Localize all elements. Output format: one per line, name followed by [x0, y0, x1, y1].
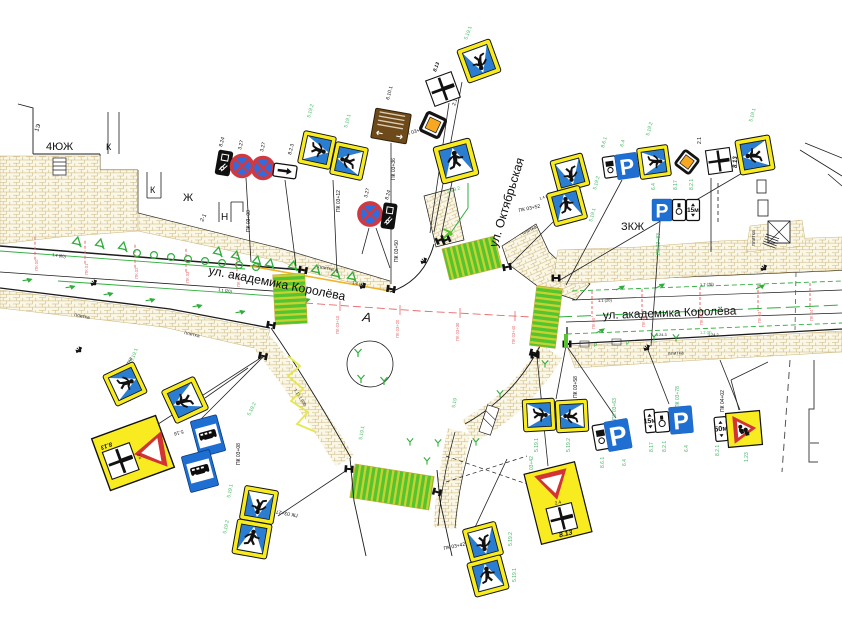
svg-text:15м: 15м	[687, 207, 699, 214]
svg-text:5.19.1: 5.19.1	[534, 438, 540, 452]
svg-text:Ж: Ж	[183, 192, 193, 204]
svg-text:ПК 03: ПК 03	[185, 271, 190, 283]
svg-text:8.2.1: 8.2.1	[715, 445, 721, 456]
svg-text:ПК 03+08: ПК 03+08	[236, 443, 242, 465]
svg-text:50м: 50м	[714, 423, 728, 433]
svg-text:ПК 03+63: ПК 03+63	[612, 398, 618, 420]
svg-text:ПК 00: ПК 00	[34, 259, 39, 271]
svg-text:4ЮЖ: 4ЮЖ	[46, 141, 73, 153]
svg-text:6.4: 6.4	[651, 183, 657, 190]
svg-text:2.1: 2.1	[697, 137, 703, 144]
svg-text:8.2.1: 8.2.1	[689, 179, 695, 190]
svg-text:ПК 04: ПК 04	[809, 309, 814, 321]
svg-text:P: P	[672, 407, 690, 435]
svg-text:6.4: 6.4	[622, 459, 628, 466]
svg-text:ЗКЖ: ЗКЖ	[621, 221, 644, 233]
svg-text:ПК 01: ПК 01	[84, 263, 89, 275]
svg-text:ПК 03: ПК 03	[757, 311, 762, 323]
svg-text:1.24.2: 1.24.2	[708, 333, 719, 337]
svg-text:ПК 04+02: ПК 04+02	[720, 390, 726, 412]
svg-text:ПК 03+58: ПК 03+58	[573, 376, 579, 398]
svg-text:1.7 (78): 1.7 (78)	[700, 281, 715, 287]
svg-text:ПК 03+40: ПК 03+40	[511, 325, 516, 344]
svg-text:8.17: 8.17	[649, 442, 655, 452]
svg-text:Н: Н	[221, 212, 228, 223]
svg-text:ПК 03+36: ПК 03+36	[391, 158, 397, 180]
svg-text:5.19.2: 5.19.2	[508, 532, 514, 546]
svg-text:8.17: 8.17	[673, 180, 679, 190]
svg-text:6.4: 6.4	[684, 445, 690, 452]
svg-text:5.19.2: 5.19.2	[566, 438, 572, 452]
svg-text:1.1 (20): 1.1 (20)	[598, 297, 613, 303]
svg-text:8.2.1: 8.2.1	[662, 441, 668, 452]
svg-text:плитка: плитка	[751, 230, 757, 246]
svg-text:К: К	[150, 185, 156, 195]
svg-text:К: К	[106, 142, 112, 152]
svg-text:ПК 03+50: ПК 03+50	[394, 240, 400, 262]
svg-text:P: P	[656, 200, 669, 222]
svg-text:1.24.3: 1.24.3	[656, 333, 667, 337]
svg-text:ПК 03+00: ПК 03+00	[246, 210, 252, 232]
svg-text:ПК 03+78: ПК 03+78	[675, 386, 681, 408]
svg-text:ПК 00: ПК 00	[591, 317, 596, 329]
svg-text:8.6.1: 8.6.1	[600, 457, 606, 468]
svg-text:ПК 03+30: ПК 03+30	[455, 322, 460, 341]
svg-text:ПК 02: ПК 02	[134, 267, 139, 279]
svg-text:плитка: плитка	[668, 350, 684, 357]
svg-text:ПК 03+12: ПК 03+12	[336, 190, 342, 212]
svg-text:5.19.1: 5.19.1	[512, 568, 518, 582]
svg-text:ПК 03+83: ПК 03+83	[656, 233, 662, 255]
svg-text:ПК 03+20: ПК 03+20	[395, 319, 400, 338]
svg-text:ПК 03+10: ПК 03+10	[335, 315, 340, 334]
svg-text:1.23: 1.23	[744, 452, 750, 462]
